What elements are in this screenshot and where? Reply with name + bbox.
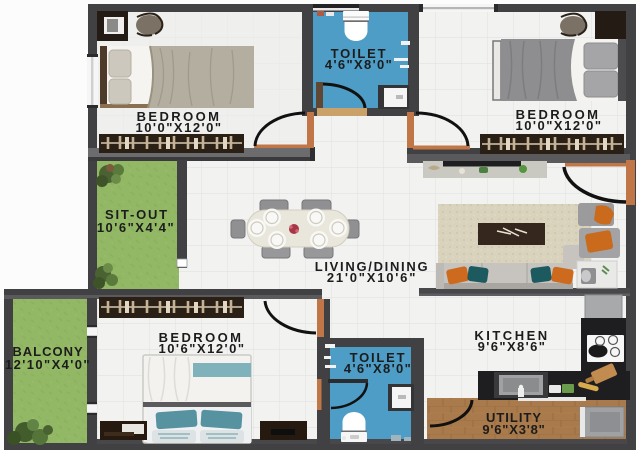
svg-text:4'6"X8'0": 4'6"X8'0" xyxy=(344,361,412,376)
svg-text:12'10"X4'0": 12'10"X4'0" xyxy=(5,357,91,372)
svg-text:10'6"X4'4": 10'6"X4'4" xyxy=(97,220,175,235)
svg-text:10'0"X12'0": 10'0"X12'0" xyxy=(515,118,602,133)
svg-text:9'6"X3'8": 9'6"X3'8" xyxy=(482,422,545,437)
svg-text:9'6"X8'6": 9'6"X8'6" xyxy=(478,339,547,354)
svg-text:21'0"X10'6": 21'0"X10'6" xyxy=(327,270,417,285)
svg-text:10'6"X12'0": 10'6"X12'0" xyxy=(158,341,245,356)
svg-text:4'6"X8'0": 4'6"X8'0" xyxy=(325,57,393,72)
svg-text:10'0"X12'0": 10'0"X12'0" xyxy=(135,120,222,135)
